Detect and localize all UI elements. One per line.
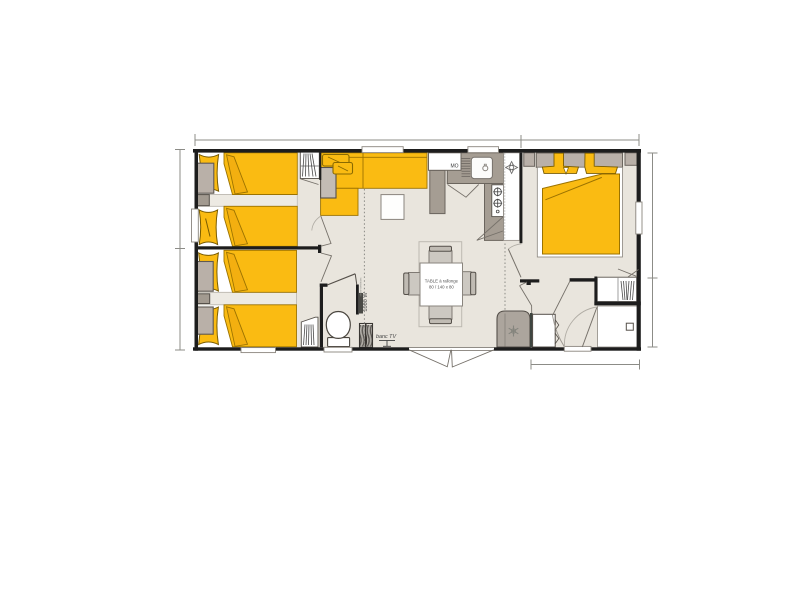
svg-text:TABLE à rallonge: TABLE à rallonge: [425, 278, 459, 283]
svg-text:sèche serviettes: sèche serviettes: [359, 277, 363, 296]
svg-text:80 / 140 x 80: 80 / 140 x 80: [429, 284, 454, 289]
svg-text:MO: MO: [450, 164, 458, 170]
svg-text:banc TV: banc TV: [376, 334, 397, 340]
svg-text:1000 W: 1000 W: [363, 292, 369, 312]
